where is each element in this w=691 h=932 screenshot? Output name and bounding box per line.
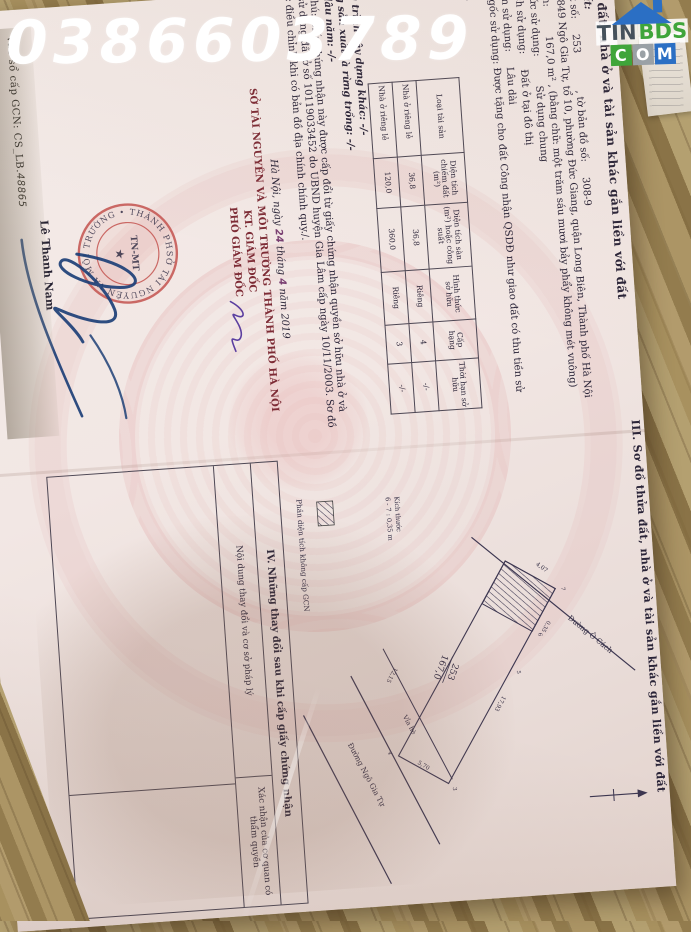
col-footprint: Diện tích chiếm đất (m²) [421, 152, 467, 205]
logo-com-row: C O M [595, 42, 690, 66]
cell-footprint: 120,0 [373, 157, 400, 208]
logo-wordmark: TINBDS [595, 20, 690, 44]
col-floor-area: Diện tích sàn (m²) hoặc công suất [425, 202, 472, 269]
vertex-6: 6 [536, 633, 542, 637]
cell-floor-area: 360,0 [377, 206, 405, 272]
col-ownership: Hình thức sở hữu [429, 266, 476, 322]
cell-grade: 4 [409, 322, 436, 363]
col-grade: Cấp hạng [433, 319, 479, 361]
section-4-empty-body [47, 466, 243, 919]
col-asset-type: Loại tài sản [416, 78, 464, 156]
cell-term: -/- [412, 361, 439, 412]
parcel-number-value: 253 [570, 34, 582, 54]
dim-bottom-edge: 12,15 [384, 666, 397, 684]
logo-block-c: C [610, 44, 632, 66]
road-top-label: Đường Ô Cách [566, 613, 615, 655]
deputy-initial-signature [222, 296, 252, 358]
dimension-note-line1: Kích thước [392, 496, 402, 532]
tinbds-logo: TINBDS C O M [594, 0, 690, 66]
vertex-5: 5 [515, 670, 521, 674]
road-bottom-label: Đường Ngô Gia Tự [346, 741, 388, 809]
date-day-handwritten: 24 [272, 228, 284, 243]
date-mid2: năm [277, 288, 290, 311]
certificate-page: II. Thửa đất, nhà ở và tài sản khác gắn … [0, 0, 676, 932]
date-prefix: Hà Nội, ngày [268, 159, 284, 226]
dim-gap-6-7: 0,35 [540, 619, 551, 633]
dim-top-edge: 17,93 [493, 695, 506, 713]
serial-number-handwritten: 48865 [14, 173, 27, 208]
cell-asset-type: Nhà ở riêng lẻ [368, 82, 397, 158]
dim-front-edge: 5,70 [416, 760, 430, 772]
phone-watermark: 0386603789 [6, 4, 474, 79]
legend-label: Phần diện tích không cấp GCN [294, 499, 311, 612]
legend-hatch-swatch [317, 501, 335, 526]
cell-grade: 3 [385, 324, 412, 365]
cell-ownership: Riêng [381, 270, 409, 325]
signing-block: Hà Nội, ngày 24 tháng 4 năm 2019 SỞ TÀI … [217, 84, 296, 417]
cell-term: -/- [388, 363, 415, 414]
dim-back-edge: 4,07 [534, 562, 548, 575]
col-term: Thời hạn sở hữu [436, 358, 482, 411]
map-sheet-value: 308-9 [580, 177, 593, 207]
vertex-3: 3 [451, 787, 457, 791]
area-label: c) Diện tích: [536, 0, 551, 7]
section-4-changes-table: IV. Những thay đổi sau khi cấp giấy chứn… [46, 461, 308, 920]
date-month-handwritten: 4 [276, 278, 287, 286]
logo-block-m: M [654, 43, 676, 65]
north-arrow-icon [589, 787, 648, 803]
cell-footprint: 36,8 [397, 155, 424, 206]
cell-ownership: Riêng [405, 269, 433, 324]
date-year: 2019 [278, 313, 291, 339]
vertex-7: 7 [559, 587, 565, 591]
house-roof-icon [611, 1, 672, 25]
cell-floor-area: 36,8 [401, 205, 429, 271]
logo-block-o: O [632, 44, 654, 66]
plot-diagram: Đường Ô Cách 253 167,0 17,93 12,15 5,70 … [280, 418, 658, 911]
date-mid1: tháng [274, 246, 287, 276]
